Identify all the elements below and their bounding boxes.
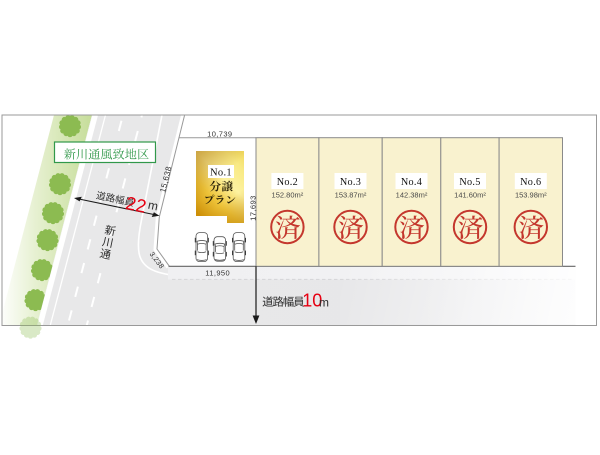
svg-text:22: 22 [124,192,148,217]
svg-text:17,693: 17,693 [248,195,257,221]
svg-text:152.80m²: 152.80m² [272,191,304,200]
svg-text:No.4: No.4 [401,177,422,188]
svg-text:142.38m²: 142.38m² [396,191,428,200]
svg-text:153.98m²: 153.98m² [515,191,547,200]
svg-text:153.87m²: 153.87m² [335,191,367,200]
svg-text:10,739: 10,739 [207,130,232,139]
svg-text:141.60m²: 141.60m² [454,191,486,200]
svg-text:No.3: No.3 [340,177,361,188]
svg-text:No.5: No.5 [459,177,480,188]
svg-text:No.6: No.6 [520,177,541,188]
svg-text:No.2: No.2 [277,177,298,188]
svg-text:No.1: No.1 [210,168,232,179]
svg-text:11,950: 11,950 [205,268,230,277]
svg-text:m: m [319,296,329,310]
